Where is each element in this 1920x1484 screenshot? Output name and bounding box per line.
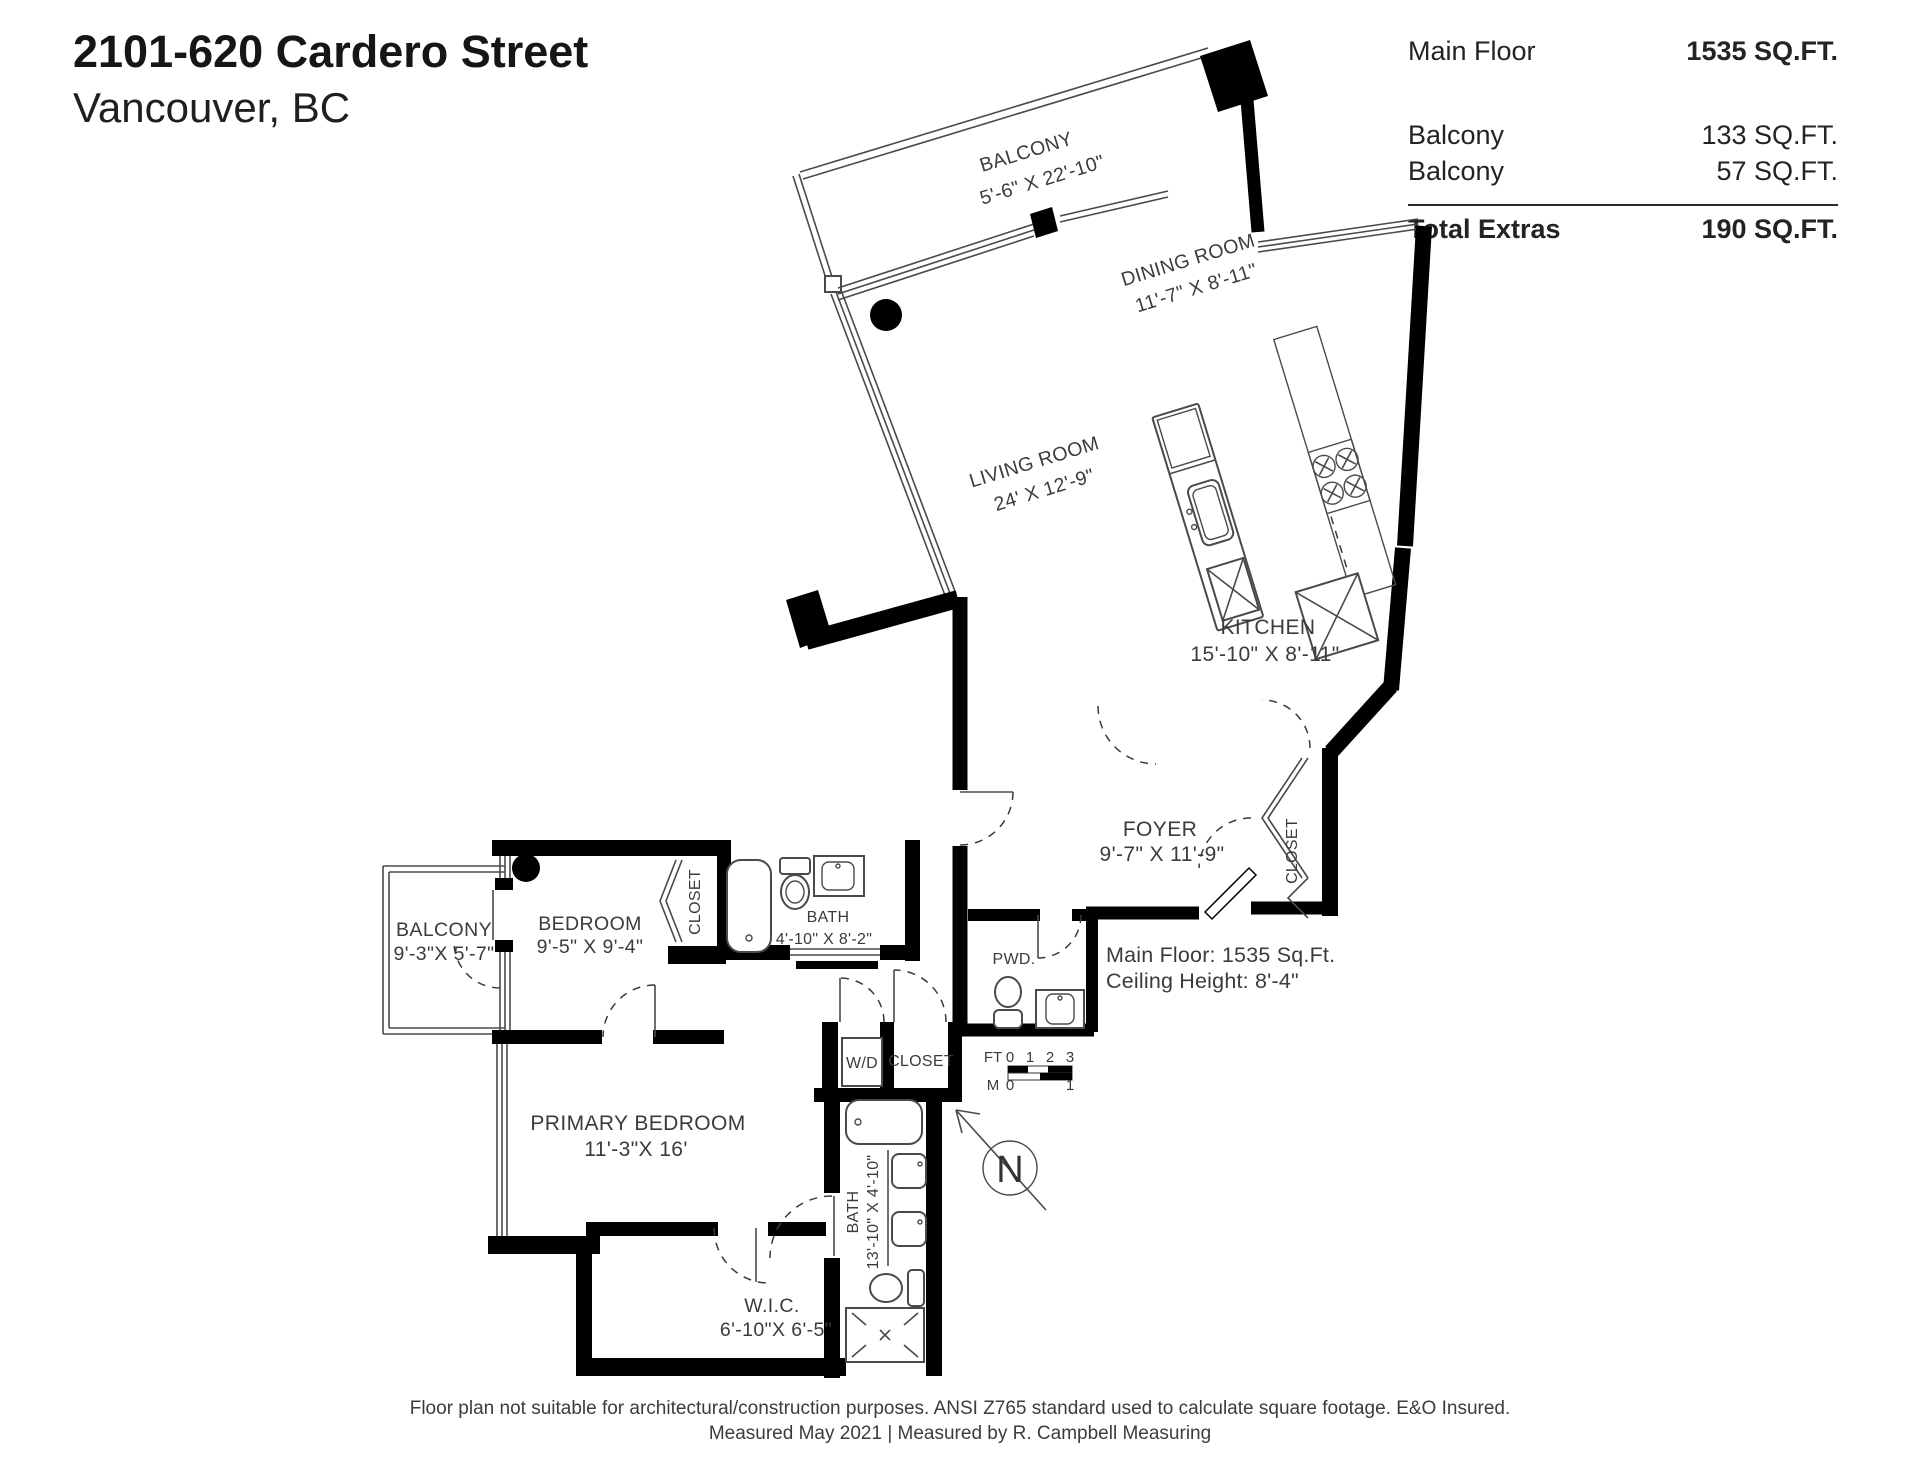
toilet: [995, 977, 1021, 1007]
footer-line1: Floor plan not suitable for architectura…: [0, 1396, 1920, 1421]
scale-m-label: M: [987, 1077, 1000, 1094]
room-dims-kitchen: 15'-10" X 8'-11": [1190, 643, 1339, 666]
room-label-bath-upper: BATH: [807, 909, 850, 926]
scale-tick: 2: [1046, 1049, 1054, 1066]
rail-junction: [825, 276, 841, 292]
note-main-floor: Main Floor: 1535 Sq.Ft.: [1106, 943, 1335, 967]
bathtub: [846, 1100, 922, 1144]
room-label-foyer-closet: CLOSET: [1284, 818, 1301, 884]
room-label-primary: PRIMARY BEDROOM: [530, 1112, 745, 1135]
scale-tick: 0: [1006, 1049, 1014, 1066]
scale-bar: FT 0 1 2 3 M 0 1: [984, 1049, 1074, 1094]
room-label-kitchen: KITCHEN: [1221, 616, 1316, 639]
room-label-hall-closet: CLOSET: [888, 1053, 954, 1070]
room-label-wic: W.I.C.: [744, 1295, 799, 1317]
scale-tick: 1: [1066, 1077, 1074, 1094]
room-label-balcony-left: BALCONY: [396, 919, 492, 941]
room-label-bedroom-closet: CLOSET: [687, 869, 704, 935]
scale-tick: 3: [1066, 1049, 1074, 1066]
footer-disclaimer: Floor plan not suitable for architectura…: [0, 1396, 1920, 1446]
room-dims-bedroom: 9'-5" X 9'-4": [537, 936, 644, 958]
pwd-fixtures: [994, 977, 1084, 1028]
room-dims-bath-lower: 13'-10" X 4'-10": [865, 1155, 882, 1270]
toilet: [870, 1274, 902, 1302]
column: [870, 299, 902, 331]
door-jamb: [1030, 207, 1058, 238]
label-wd: W/D: [846, 1055, 878, 1072]
room-dims-wic: 6'-10"X 6'-5": [720, 1319, 832, 1341]
scale-ft-label: FT: [984, 1049, 1002, 1066]
room-dims-bath-upper: 4'-10" X 8'-2": [776, 931, 872, 948]
north-arrow: N: [956, 1110, 1046, 1210]
hall-closets: [814, 970, 962, 1102]
room-dims-foyer: 9'-7" X 11'-9": [1099, 843, 1224, 866]
room-label-bedroom: BEDROOM: [538, 913, 642, 935]
shower: [846, 1308, 924, 1362]
note-ceiling: Ceiling Height: 8'-4": [1106, 969, 1299, 993]
stove: [1308, 439, 1371, 514]
footer-line2: Measured May 2021 | Measured by R. Campb…: [0, 1421, 1920, 1446]
column: [512, 854, 540, 882]
room-label-bath-lower: BATH: [845, 1191, 862, 1234]
toilet: [781, 875, 809, 909]
bathtub: [727, 860, 771, 952]
sink: [892, 1154, 926, 1188]
room-label-foyer: FOYER: [1123, 818, 1197, 841]
room-dims-primary: 11'-3"X 16': [584, 1138, 688, 1161]
entry-door: [1205, 868, 1256, 919]
room-labels: BALCONY 5'-6" X 22'-10" DINING ROOM 11'-…: [394, 128, 1340, 1341]
scale-tick: 0: [1006, 1077, 1014, 1094]
room-dims-balcony-left: 9'-3"X 5'-7": [394, 943, 495, 965]
scale-tick: 1: [1026, 1049, 1034, 1066]
floor-plan-drawing: FT 0 1 2 3 M 0 1 N BALCONY 5'-6" X 22'-1…: [0, 0, 1920, 1484]
room-label-pwd: PWD.: [993, 951, 1036, 968]
sink: [892, 1212, 926, 1246]
north-letter: N: [996, 1149, 1023, 1191]
